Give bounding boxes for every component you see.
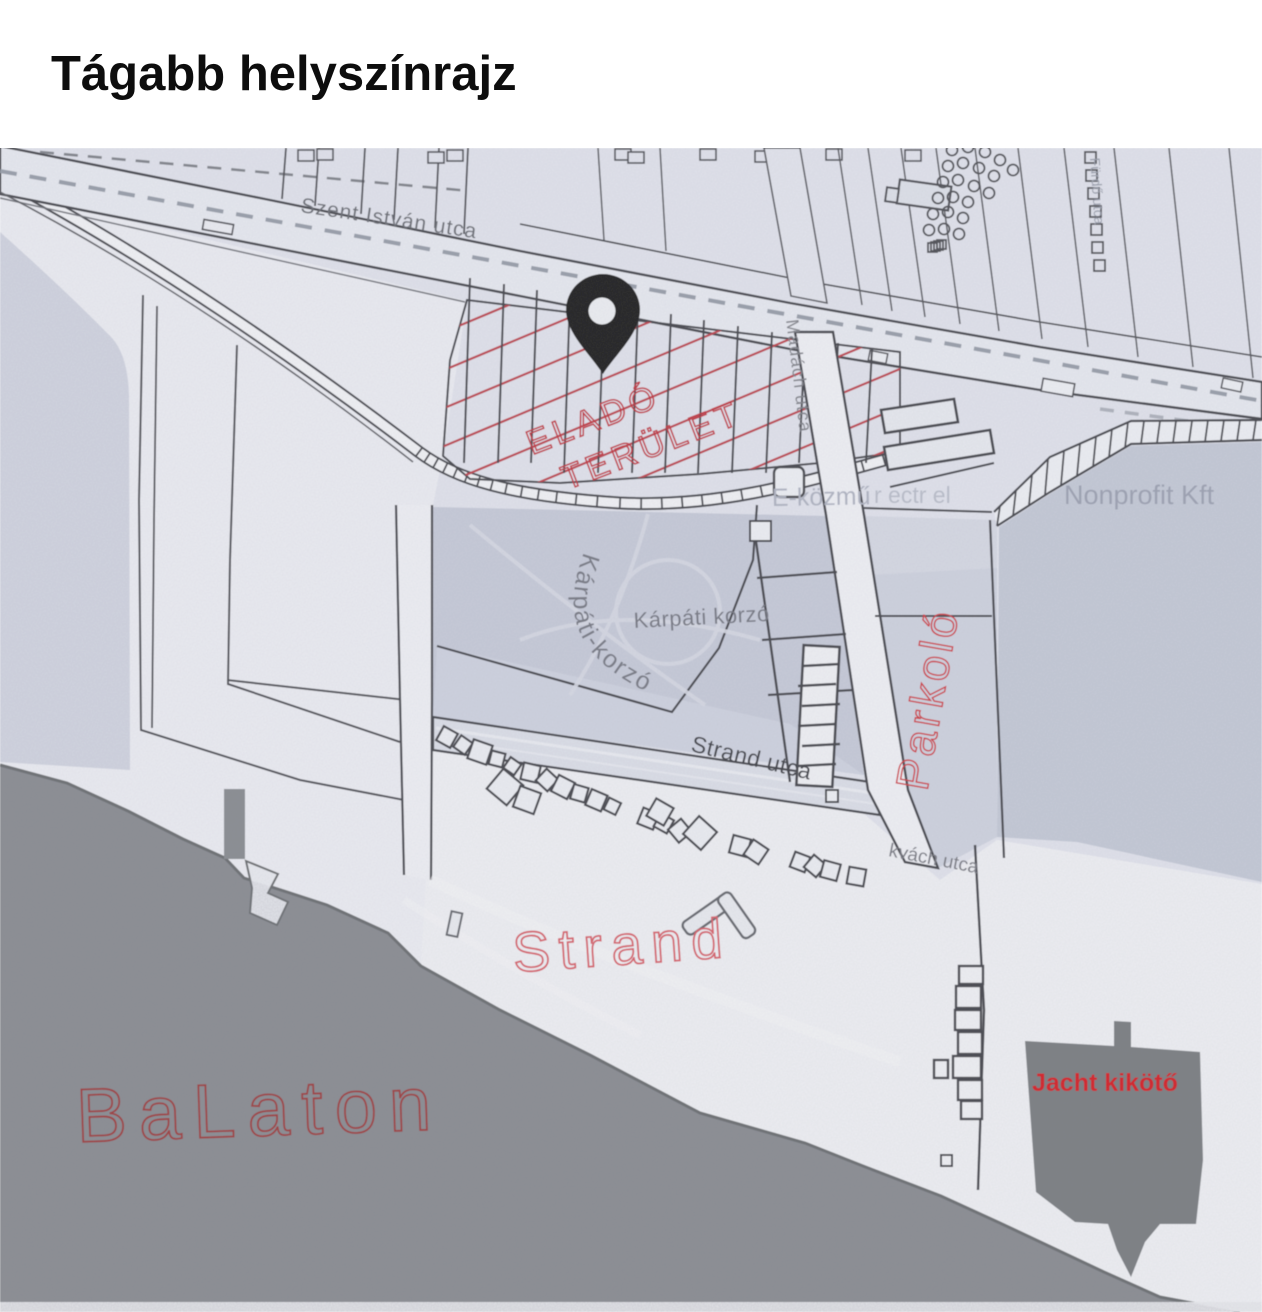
svg-text:Tágabb helyszínrajz: Tágabb helyszínrajz	[51, 47, 517, 101]
